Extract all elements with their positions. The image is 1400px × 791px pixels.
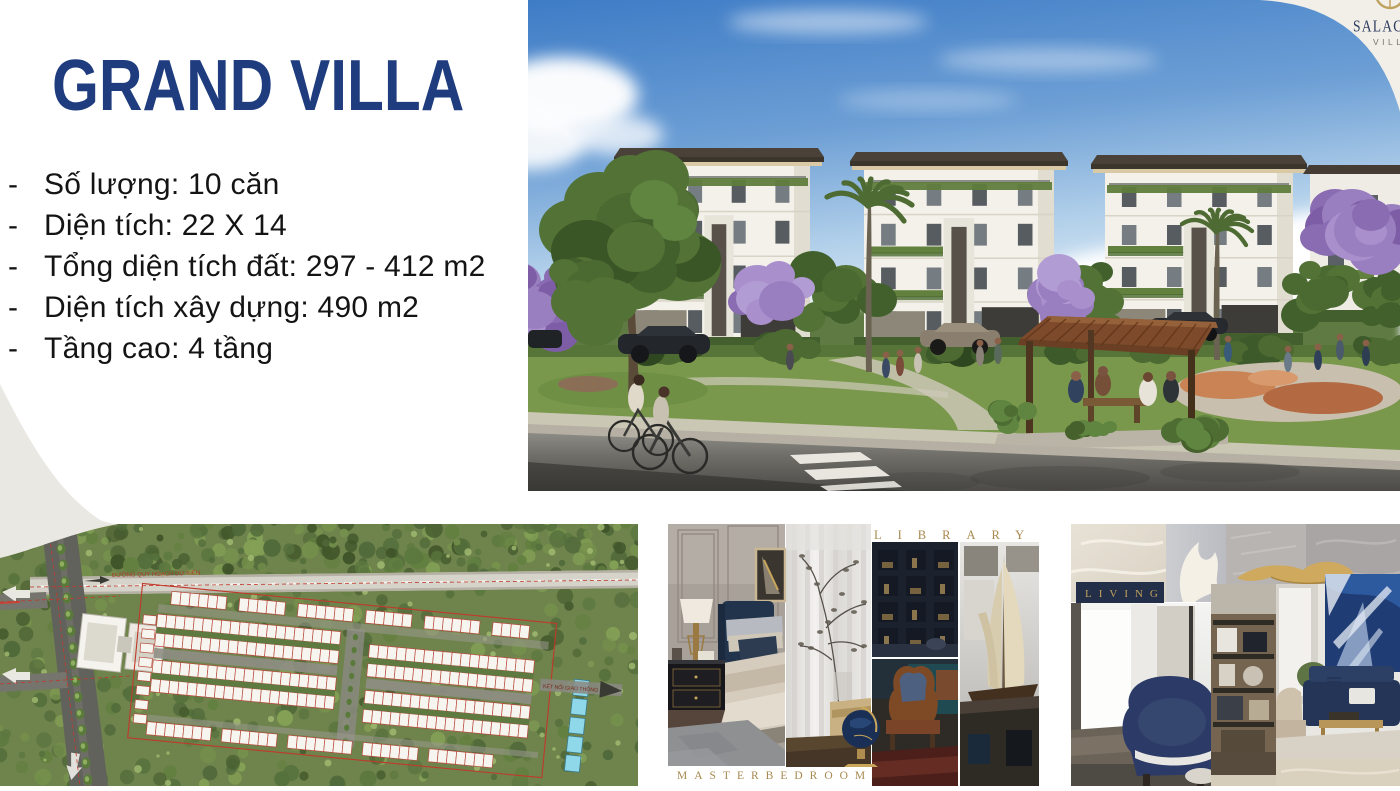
svg-text:LIVING: LIVING [1085, 588, 1165, 600]
svg-text:SALAC: SALAC [1353, 17, 1400, 36]
svg-text:LIBRARY: LIBRARY [874, 528, 1040, 542]
svg-text:VILLA: VILLA [1373, 37, 1400, 47]
svg-text:MASTERBEDROOM: MASTERBEDROOM [677, 770, 872, 782]
